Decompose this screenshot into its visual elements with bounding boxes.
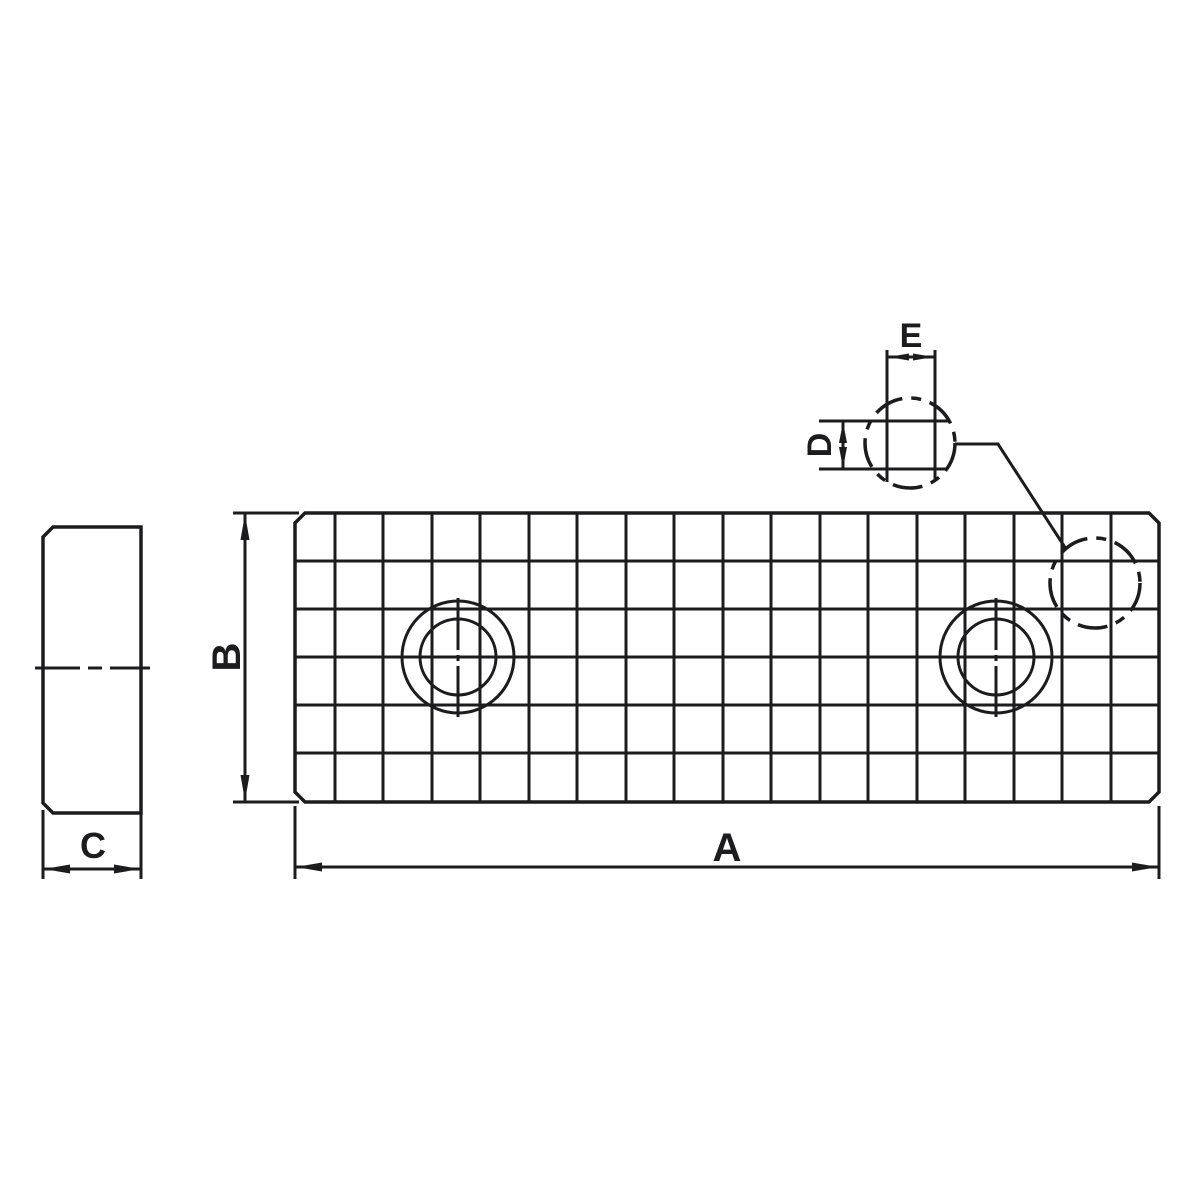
side-view-outline [43, 527, 141, 813]
dim-d-arrow-down [839, 447, 847, 468]
dim-a-arrow-right [1132, 863, 1158, 872]
dim-a-arrow-left [296, 863, 322, 872]
dimension-e: E [888, 317, 934, 361]
dimension-a: A [295, 806, 1159, 879]
side-view [35, 527, 150, 813]
dim-b-arrow-down [241, 775, 250, 801]
dimension-b: B [205, 513, 299, 802]
technical-drawing-svg: C B [0, 0, 1200, 1200]
dim-d-arrow-up [839, 422, 847, 443]
dim-c-arrow-left [44, 865, 70, 874]
dim-b-arrow-up [241, 514, 250, 540]
dim-label-d: D [801, 433, 839, 458]
dim-label-c: C [80, 825, 106, 866]
hole-right [910, 598, 1080, 717]
dimension-c: C [43, 810, 141, 879]
dimension-d: D [801, 422, 847, 468]
dim-c-arrow-right [114, 865, 140, 874]
detail-circle [865, 398, 955, 488]
dim-label-e: E [900, 317, 923, 355]
front-view [293, 511, 1161, 804]
dim-label-b: B [205, 643, 249, 672]
drawing-canvas: C B [0, 0, 1200, 1200]
dim-label-a: A [713, 826, 742, 870]
detail-leader-line [955, 444, 1066, 549]
hole-left [372, 598, 542, 717]
